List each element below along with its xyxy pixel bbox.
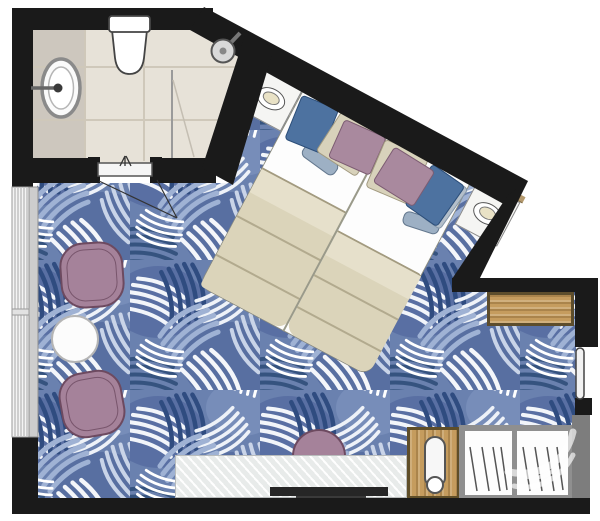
door-jamb-stub [575,398,592,415]
shower-head-center [220,48,227,55]
walls-and-symbols-layer [0,0,600,521]
door-swing-line-left [99,181,177,218]
wall-notch [452,181,528,290]
toilet-bowl [112,30,147,74]
wall-bottom [12,498,590,514]
window-sill [29,187,38,437]
shower-glass-swing [173,80,194,157]
sketch-swirl [508,432,573,487]
faucet-icon [54,84,63,93]
wall-bath-bottom-left [12,158,90,183]
entry-door-leaf [576,348,584,399]
window-mullion [12,309,29,315]
window [12,187,38,437]
walls [12,7,598,514]
wall-right-upper [575,278,598,347]
wall-left-lower-corner [12,435,38,514]
toilet-tank [109,16,150,32]
door-swing-line-right [157,180,177,218]
floorplan [0,0,600,521]
